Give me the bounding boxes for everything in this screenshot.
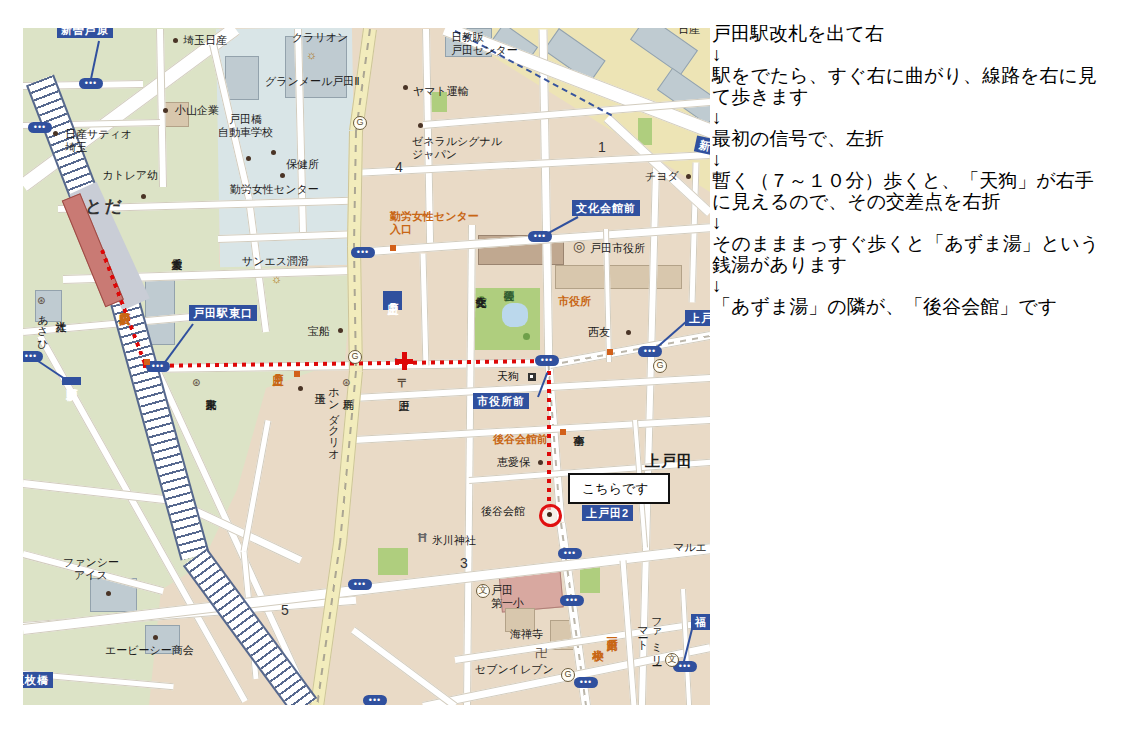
- poi-dot: [163, 108, 168, 113]
- sign-kamitoda-cut: 上戸: [685, 310, 710, 326]
- label-seven-eleven: セブンイレブン: [475, 663, 554, 676]
- label-toda-daiichi: 戸田 第一小: [491, 584, 524, 610]
- intersection-dot: [560, 429, 566, 435]
- direction-step-4: 暫く（７～１０分）歩くと、「天狗」が右手 に見えるので、その交差点を右折: [712, 170, 1122, 212]
- intersection-dot: [144, 359, 150, 365]
- sign-kamitoda2: 上戸田2: [582, 505, 633, 521]
- bus-stop-icon: •••: [351, 247, 375, 258]
- label-block3: 3: [460, 557, 468, 570]
- bus-stop-icon: •••: [560, 595, 584, 606]
- temple-manji-icon: 卍: [535, 647, 547, 659]
- sign-niizo: 新曽芦原: [57, 28, 113, 38]
- sign-bunka-kaikan-mae: 文化会館前: [572, 200, 640, 216]
- label-kaizenji: 海禅寺: [510, 628, 543, 641]
- company-icon: ⊛: [192, 377, 200, 389]
- bus-stop-icon: •••: [535, 355, 559, 366]
- label-goyakaikan-mae: 後谷会館前: [493, 433, 548, 446]
- label-kinro-center: 勤労女性センター: [230, 183, 319, 196]
- intersection-dot: [294, 371, 300, 377]
- label-honda-clio: ホンダクリオ: [328, 380, 340, 455]
- label-nikkyohan: 日教販 戸田センター: [451, 31, 518, 57]
- park-tree: [478, 296, 485, 303]
- down-arrow: ↓: [712, 107, 1122, 128]
- label-fancy-ice: ファンシー アイス: [63, 556, 119, 582]
- park-tree: [523, 333, 530, 340]
- poi-dot: [53, 131, 58, 136]
- direction-step-2: 駅をでたら、すぐ右に曲がり、線路を右に見 て歩きます: [712, 65, 1122, 107]
- poi-dot: [403, 85, 408, 90]
- bus-stop-icon: •••: [363, 695, 387, 705]
- poi-dot: [538, 460, 543, 465]
- label-goyakaikan: 後谷会館: [481, 505, 525, 518]
- label-grandmaire: グランメール戸田Ⅱ: [265, 75, 360, 88]
- label-kamitoda-big: 上戸田: [645, 454, 693, 467]
- company-icon: ⊛: [342, 377, 350, 389]
- bus-stop-icon: •••: [23, 351, 43, 362]
- label-toda-cityhall: 戸田市役所: [590, 242, 645, 255]
- directions-panel: 戸田駅改札を出て右 ↓ 駅をでたら、すぐ右に曲がり、線路を右に見 て歩きます ↓…: [712, 23, 1122, 317]
- intersection-dot: [390, 245, 396, 251]
- company-icon: ⊛: [37, 295, 45, 307]
- label-toda-station: とだ: [85, 200, 124, 213]
- poi-dot: [418, 123, 423, 128]
- bus-stop-icon: •••: [348, 579, 372, 590]
- label-shiyakusho-orange: 市役所: [558, 295, 591, 308]
- road: [463, 225, 476, 705]
- factory-icon: ☼: [271, 273, 282, 285]
- gas-station-icon: G: [561, 668, 575, 682]
- gas-station-icon: G: [348, 350, 362, 364]
- map-canvas: こちらです ••• ••• ••• ••• ••• ••• ••• ••• ••…: [23, 28, 710, 705]
- label-keiaiho: 恵愛保: [497, 456, 530, 469]
- label-yamato: ヤマト運輸: [413, 85, 469, 98]
- post-office-icon: 〒: [397, 377, 409, 389]
- bus-stop-icon: •••: [574, 677, 598, 688]
- direction-step-1: 戸田駅改札を出て右: [712, 23, 1122, 44]
- poi-dot: [686, 174, 691, 179]
- poi-dot: [173, 38, 178, 43]
- factory-icon: ☼: [306, 49, 317, 61]
- sign-kamitoda5: 上戸田５: [383, 291, 402, 310]
- label-abc-shokai: エービーシー商会: [105, 644, 194, 657]
- road: [420, 253, 430, 365]
- sign-fuku-cut: 福: [691, 614, 710, 630]
- school-icon: 文: [665, 653, 679, 667]
- city-office-icon: ◎: [573, 240, 585, 252]
- bus-stop-icon: •••: [638, 346, 662, 357]
- torii-icon: Ħ: [418, 532, 427, 544]
- label-seiyu: 西友: [588, 326, 610, 339]
- label-nissan-satio: 日産サティオ 埼玉: [65, 128, 132, 154]
- destination-marker: [539, 504, 562, 527]
- road: [351, 627, 458, 705]
- label-toda-bashi: 戸田橋 自動車学校: [218, 113, 273, 139]
- school-icon: 文: [476, 584, 490, 598]
- down-arrow: ↓: [712, 212, 1122, 233]
- down-arrow: ↓: [712, 275, 1122, 296]
- down-arrow: ↓: [712, 44, 1122, 65]
- building-cityhall: [555, 265, 682, 289]
- sign-toda-east-exit: 戸田駅東口: [189, 305, 257, 321]
- label-chiyoda: チヨダ: [645, 170, 679, 183]
- down-arrow: ↓: [712, 149, 1122, 170]
- label-block5: 5: [281, 604, 289, 617]
- poi-dot: [626, 330, 631, 335]
- label-koyama: 小山企業: [175, 104, 219, 117]
- direction-step-5: そのまままっすぐ歩くと「あずま湯」という 銭湯があります: [712, 233, 1122, 275]
- label-sanesu: サンエス潤滑: [242, 255, 309, 268]
- label-kinro-iriguchi: 勤労女性センター 入口: [390, 210, 479, 236]
- sign-maibashi: 五枚橋: [23, 672, 53, 688]
- label-hokensho: 保健所: [286, 158, 319, 171]
- signal-cross-icon: [402, 352, 407, 370]
- poi-dot: [280, 173, 285, 178]
- label-general-signal: ゼネラルシグナル ジャパン: [412, 135, 502, 161]
- bus-stop-icon: •••: [28, 122, 52, 133]
- gas-station-icon: G: [353, 116, 367, 130]
- sign-shiyakusho-mae: 市役所前: [473, 393, 529, 409]
- green-patch: [378, 548, 408, 575]
- label-familymart-right: ファミリー: [651, 610, 663, 660]
- park-pond: [502, 303, 528, 327]
- label-hikawa: 氷川神社: [432, 534, 476, 547]
- poi-dot: [338, 328, 343, 333]
- bus-stop-icon: •••: [558, 548, 582, 559]
- label-cattleya: カトレア幼: [102, 169, 158, 182]
- label-saitama-nissan: 埼玉日産: [183, 34, 227, 47]
- intersection-dot: [607, 349, 613, 355]
- yellow-road: [347, 131, 363, 247]
- gas-station-icon: G: [653, 359, 667, 373]
- poi-dot: [298, 386, 303, 391]
- label-marue: マルエ: [673, 541, 707, 554]
- direction-step-3: 最初の信号で、左折: [712, 128, 1122, 149]
- bus-stop-icon: •••: [528, 231, 552, 242]
- label-familymart-left: マート: [637, 620, 649, 645]
- label-clarion: クラリオン: [292, 31, 348, 44]
- label-asahi: あさひ: [37, 307, 49, 345]
- sign-toda-west-exit: 戸田駅西口: [62, 377, 81, 385]
- road: [549, 331, 710, 369]
- page: { "directions": { "arrow": "↓", "steps":…: [0, 0, 1127, 732]
- poi-dot: [106, 591, 111, 596]
- here-callout: こちらです: [568, 473, 670, 504]
- poi-dot: [271, 150, 276, 155]
- poi-dot: [153, 635, 158, 640]
- bus-stop-icon: •••: [79, 78, 103, 89]
- label-block1: 1: [598, 141, 606, 154]
- tengu-shop-icon: [528, 373, 536, 381]
- label-kamitoda5-orange: 上戸田５: [272, 366, 284, 377]
- poi-dot: [246, 156, 251, 161]
- label-block4: 4: [395, 161, 403, 174]
- label-nissan-cut: 日産: [678, 28, 700, 36]
- poi-dot: [141, 194, 146, 199]
- label-takarabune: 宝船: [308, 325, 330, 338]
- yellow-road: [310, 542, 347, 705]
- direction-step-6: 「あずま湯」の隣が、「後谷会館」です: [712, 296, 1122, 317]
- building: [225, 56, 259, 100]
- label-tengu: 天狗: [497, 370, 519, 383]
